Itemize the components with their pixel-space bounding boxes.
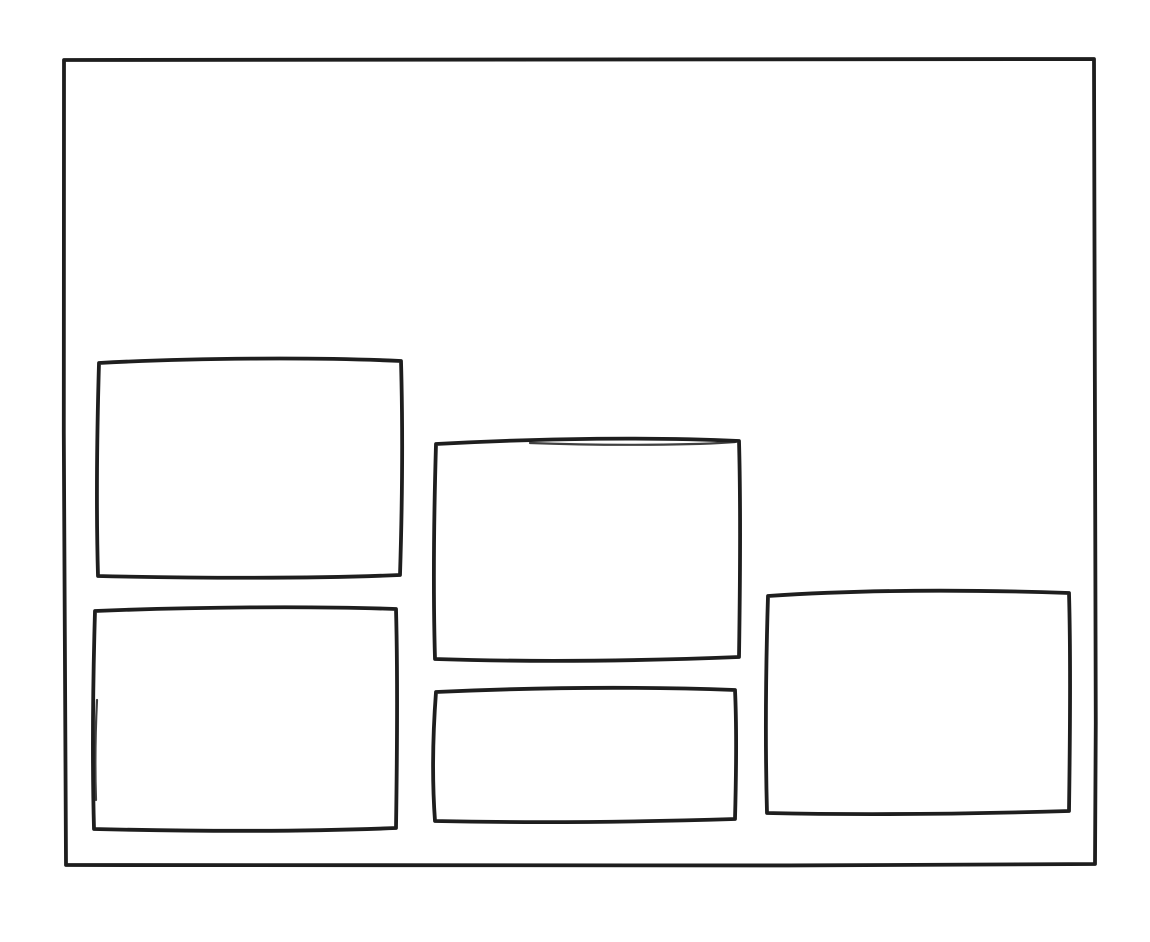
box-middle-overdraw-stroke — [530, 442, 735, 445]
box-top-left — [97, 359, 402, 578]
box-bottom-middle — [433, 688, 736, 822]
box-bottom-left-overdraw-stroke — [95, 700, 97, 800]
box-middle — [434, 439, 740, 661]
box-bottom-left — [93, 607, 397, 830]
wireframe-sketch — [0, 0, 1150, 942]
outer-frame — [64, 58, 1096, 866]
box-right — [766, 591, 1070, 814]
sketch-canvas — [0, 0, 1150, 942]
